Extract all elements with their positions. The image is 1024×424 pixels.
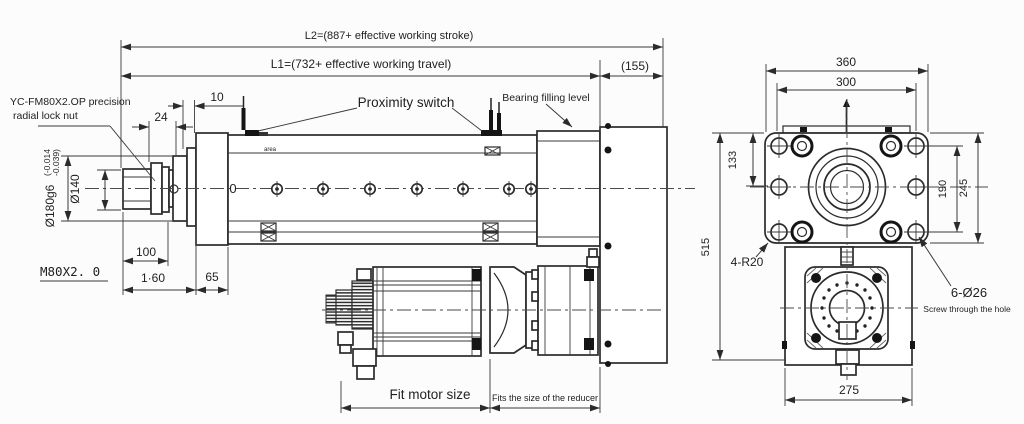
spline-coupling <box>352 281 374 329</box>
dim-65-label: 65 <box>205 270 219 284</box>
dim-133-label: 133 <box>727 151 739 169</box>
tolerance-lower-label: -0.039) <box>51 149 61 176</box>
bolt-holes-note-label: Screw through the hole <box>923 304 1011 314</box>
dim-275-label: 275 <box>839 383 859 397</box>
dim-360-label: 360 <box>836 55 856 69</box>
dim-10-label: 10 <box>210 90 224 104</box>
motor-assembly <box>326 249 599 379</box>
dim-100-label: 100 <box>136 245 156 259</box>
dim-300-label: 300 <box>836 75 856 89</box>
dim-160-label: 1·60 <box>141 271 165 285</box>
dim-190-label: 190 <box>937 180 949 198</box>
rod-end-assembly <box>123 148 196 226</box>
dim-245-label: 245 <box>958 179 970 197</box>
flange-front-view <box>765 99 928 244</box>
dim-24-label: 24 <box>154 110 168 124</box>
proximity-switch-label: Proximity switch <box>358 95 455 110</box>
hex-bolt <box>792 222 812 242</box>
dim-l1-label: L1=(732+ effective working travel) <box>271 57 452 71</box>
motor-connector <box>353 349 376 366</box>
dim-flange-diameter-label: Ø180g6 <box>43 184 57 227</box>
fit-reducer-label: Fits the size of the reducer <box>492 393 598 403</box>
key-slot <box>839 322 856 339</box>
dim-l2-label: L2=(887+ effective working stroke) <box>305 30 474 42</box>
lock-nut-label-line1: YC-FM80X2.OP precision <box>10 96 131 108</box>
servo-motor-body <box>373 267 481 356</box>
reducer-front-view <box>782 247 915 375</box>
mounting-flange-plate <box>765 133 928 243</box>
stroke-zero-label: 0 <box>229 181 236 196</box>
head-flange-plate <box>196 133 228 245</box>
dim-155-label: (155) <box>621 59 649 73</box>
gear-pinion <box>336 290 352 325</box>
area-label: area <box>264 147 277 153</box>
bolt-holes-label: 6-Ø26 <box>951 285 987 300</box>
breather-fitting <box>589 249 597 257</box>
hex-bolt <box>792 136 812 156</box>
thread-label: M80X2. 0 <box>40 264 100 279</box>
technical-drawing-canvas: L2=(887+ effective working stroke) L1=(7… <box>0 0 1024 424</box>
dim-515-label: 515 <box>700 238 712 256</box>
dim-flange-diameter-group: Ø180g6 (-0.014 -0.039) <box>42 149 61 228</box>
fit-motor-label: Fit motor size <box>389 387 470 402</box>
dim-rod-diameter-label: Ø140 <box>68 174 82 204</box>
hex-bolt <box>881 222 901 242</box>
bearing-filling-label: Bearing filling level <box>502 92 590 104</box>
electric-cylinder-drawing: L2=(887+ effective working stroke) L1=(7… <box>0 0 1024 424</box>
motor-shaft-stub <box>326 295 336 323</box>
hex-bolt <box>881 136 901 156</box>
proximity-sensor-right <box>481 98 502 136</box>
corner-radius-label: 4-R20 <box>731 255 764 269</box>
motor-connector <box>357 366 374 379</box>
lock-nut-label-line2: radial lock nut <box>13 110 78 122</box>
